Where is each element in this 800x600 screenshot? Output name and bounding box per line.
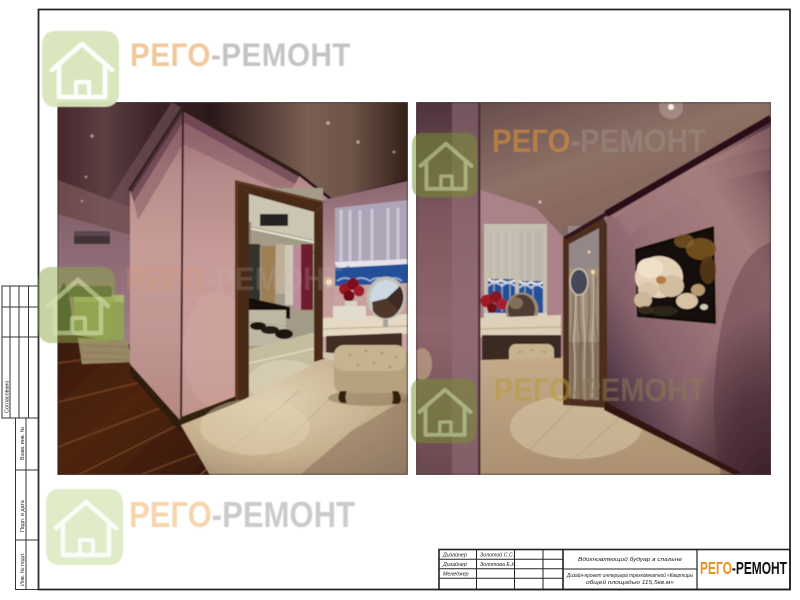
- svg-text:Золотой С.С.: Золотой С.С.: [480, 552, 514, 559]
- svg-text:общей площадью 115,5кв.м»: общей площадью 115,5кв.м»: [586, 579, 674, 586]
- svg-text:РЕГО-РЕМОНТ: РЕГО-РЕМОНТ: [494, 372, 706, 408]
- svg-text:Инв. № подл.: Инв. № подл.: [20, 552, 26, 586]
- svg-text:Подп. и дата: Подп. и дата: [20, 500, 26, 532]
- svg-text:РЕГО-РЕМОНТ: РЕГО-РЕМОНТ: [492, 123, 706, 159]
- svg-text:РЕГО-РЕМОНТ: РЕГО-РЕМОНТ: [125, 261, 343, 297]
- svg-text:Согласовано: Согласовано: [5, 381, 11, 413]
- svg-text:Золотова Е.И.: Золотова Е.И.: [480, 562, 517, 568]
- svg-text:Менеджер: Менеджер: [443, 572, 469, 578]
- svg-text:РЕГО-РЕМОНТ: РЕГО-РЕМОНТ: [130, 37, 351, 73]
- svg-text:Дизайнер: Дизайнер: [442, 561, 467, 568]
- svg-text:Дизайн-проект интерьера трехко: Дизайн-проект интерьера трехкомнатной «К…: [566, 572, 693, 579]
- svg-text:РЕГО-РЕМОНТ: РЕГО-РЕМОНТ: [700, 558, 787, 578]
- svg-text:Вдохновляющий будуар в спальне: Вдохновляющий будуар в спальне: [578, 556, 683, 563]
- svg-text:Взам. инв. №: Взам. инв. №: [20, 426, 26, 460]
- svg-text:РЕГО-РЕМОНТ: РЕГО-РЕМОНТ: [129, 494, 355, 535]
- svg-text:Дизайнер: Дизайнер: [442, 552, 467, 559]
